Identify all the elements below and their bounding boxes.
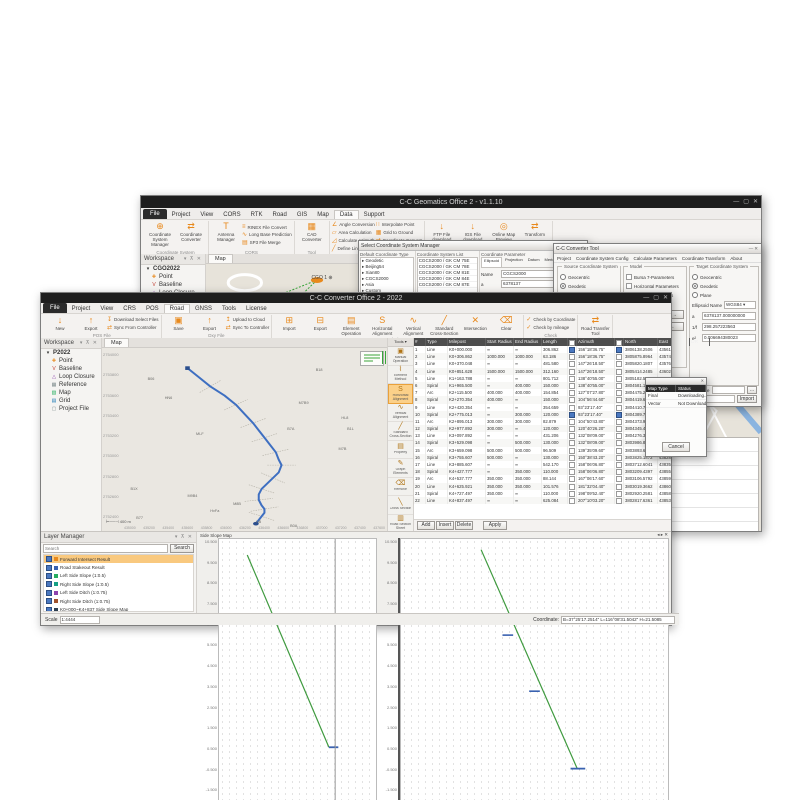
ribbon-button[interactable]: ⇄Road Transfer Tool	[580, 315, 610, 336]
radio-plane[interactable]	[692, 292, 698, 298]
tree-root[interactable]: ▾CGO2022	[141, 265, 205, 273]
table-cell: 13	[414, 432, 426, 439]
layer-item[interactable]: Forward Intersect Result	[44, 555, 193, 563]
menu-tab-view[interactable]: View	[95, 305, 118, 313]
table-cell: 3803712.6041	[624, 461, 658, 468]
ellipsoid-combo[interactable]: WGS84 ▾	[724, 301, 756, 309]
table-cell	[615, 497, 624, 504]
param-tab-datum[interactable]: Datum	[526, 257, 542, 267]
table-cell: 147°26'18.50"	[577, 368, 615, 375]
table-row[interactable]: 5LineK1+163.788∞∞801.712138°40'55.00"380…	[414, 375, 671, 382]
tool-cross-section[interactable]: ╲Cross Section	[388, 496, 413, 515]
col-header-north[interactable]: North	[624, 338, 658, 346]
graph-elements-icon: ✎	[398, 460, 404, 468]
layer-item[interactable]: K0+000~K4+837 Side Slope Map	[44, 605, 193, 612]
row-checkbox[interactable]	[616, 469, 622, 475]
tool-graph-elements[interactable]: ✎Graph Elements	[388, 459, 413, 478]
tree-item-point[interactable]: ✚Point	[141, 273, 205, 281]
row-checkbox[interactable]	[616, 448, 622, 454]
point-icon: ✚	[151, 274, 157, 280]
ribbon-small-label: Interpolate Point	[382, 222, 415, 227]
ribbon-small-button[interactable]: ▱Area Calculation	[332, 229, 375, 236]
col-header-milepost[interactable]: Milepost	[448, 338, 486, 346]
row-checkbox[interactable]	[569, 412, 575, 418]
table-row[interactable]: 6SpiralK1+965.500∞400.000150.000138°40'5…	[414, 382, 671, 389]
front-titlebar[interactable]: C-C Converter Office 2 - 2022 —▢✕	[41, 293, 671, 303]
ribbon-group-cors: TAntenna Manager≡RINEX File Convert∿Long…	[209, 221, 295, 255]
road-tool-panel: Tools ▾ ▣Manual Operation⌇Element Method…	[387, 338, 414, 531]
row-checkbox[interactable]	[616, 405, 622, 411]
table-row[interactable]: 1LineK0+000.000∞∞306.862156°18'36.75"380…	[414, 346, 671, 353]
ribbon-small-label: Check by Coordinate	[533, 317, 575, 322]
table-cell: Spiral	[426, 382, 448, 389]
ribbon-button[interactable]: TAntenna Manager	[211, 221, 241, 249]
table-row[interactable]: 3LineK0+370.048∞∞481.580147°26'18.50"380…	[414, 360, 671, 367]
table-row[interactable]: 9LineK2+420.354∞∞354.65993°23'17.40"3804…	[414, 404, 671, 411]
window-control[interactable]: ▢	[653, 293, 659, 303]
layer-visible-checkbox[interactable]	[46, 598, 52, 604]
window-control[interactable]: —	[643, 293, 649, 303]
row-checkbox[interactable]	[616, 412, 622, 418]
browse-button[interactable]: …	[747, 386, 757, 394]
row-checkbox[interactable]	[569, 383, 575, 389]
converter-menu-about[interactable]: About	[730, 256, 742, 261]
checkbox-bursa-7-parameters[interactable]	[626, 274, 632, 280]
row-checkbox[interactable]	[616, 484, 622, 490]
table-row[interactable]: 20LineK4+625.921350.000350.000101.576181…	[414, 483, 671, 490]
row-checkbox[interactable]	[616, 376, 622, 382]
window-control[interactable]: ✕	[663, 293, 668, 303]
col-header-checkbox[interactable]	[615, 338, 624, 346]
table-cell: 101.576	[542, 483, 568, 490]
table-cell: Spiral	[426, 425, 448, 432]
reference-icon: ▦	[51, 382, 57, 388]
row-checkbox[interactable]	[569, 462, 575, 468]
layer-item[interactable]: Right Side Ditch (1:0.75)	[44, 597, 193, 605]
table-cell: Arc	[426, 475, 448, 482]
radio-row[interactable]: Geocentric	[692, 274, 756, 280]
target-field-value[interactable]: 0.006694380023	[702, 334, 756, 342]
interpolate-point-icon: ∷	[376, 221, 380, 228]
row-checkbox[interactable]	[569, 469, 575, 475]
standard-cross-section-icon: ╱	[442, 315, 447, 326]
table-row[interactable]: 13LineK3+097.892∞∞431.206132°08'09.00"38…	[414, 432, 671, 439]
menu-tab-gis[interactable]: GIS	[292, 211, 312, 219]
insert-button[interactable]: Insert	[436, 521, 454, 530]
ribbon-small-label: Long Base Prediction	[249, 232, 292, 237]
param-tab-ellipsoid[interactable]: Ellipsoid	[481, 257, 502, 267]
row-checkbox[interactable]	[569, 498, 575, 504]
radio-row[interactable]: Geodetic	[560, 283, 618, 289]
converter-menu-calculate-parameters[interactable]: Calculate Parameters	[634, 256, 677, 261]
table-cell	[568, 411, 577, 418]
menu-tab-cors[interactable]: CORS	[218, 211, 245, 219]
col-header-azimuth[interactable]: Azimuth	[577, 338, 615, 346]
dialog-control[interactable]: ✕	[701, 378, 704, 383]
tree-item-loop-closure[interactable]: △Loop Closure	[41, 373, 101, 381]
table-row[interactable]: 21SpiralK4+727.497350.000∞110.000198°09'…	[414, 490, 671, 497]
ribbon-button[interactable]: ⊕Coordinate System Manager	[145, 221, 175, 249]
ribbon-button[interactable]: ⇄Coordinate Converter	[176, 221, 206, 249]
table-cell: 3802817.6361	[624, 497, 658, 504]
row-checkbox[interactable]	[569, 440, 575, 446]
tool-manual-operation[interactable]: ▣Manual Operation	[388, 347, 413, 366]
row-checkbox[interactable]	[569, 491, 575, 497]
table-row[interactable]: 16SpiralK3+755.607500.000∞130.000150°38'…	[414, 454, 671, 461]
table-row[interactable]: 2LineK0+306.8621000.0001000.00063.186156…	[414, 353, 671, 360]
layer-color-swatch	[54, 566, 58, 570]
export-icon: ↑	[207, 315, 212, 326]
chart-left-pane[interactable]: 10.5009.5008.5007.5006.5005.5004.5003.50…	[199, 538, 377, 800]
layer-visible-checkbox[interactable]	[46, 556, 52, 562]
col-header-startradius[interactable]: Start Radius	[486, 338, 514, 346]
layer-item[interactable]: Right Side Slope (1:0.5)	[44, 580, 193, 588]
radio-geocentric[interactable]	[692, 274, 698, 280]
coordinate-converter-icon: ⇄	[187, 221, 195, 232]
back-menubar: FileProjectViewCORSRTKRoadGISMapDataSupp…	[141, 208, 761, 220]
row-checkbox[interactable]	[569, 347, 575, 353]
tree-item-baseline[interactable]: VBaseline	[141, 281, 205, 289]
tree-item-point[interactable]: ✚Point	[41, 357, 101, 365]
layer-visible-checkbox[interactable]	[46, 607, 52, 612]
row-checkbox[interactable]	[616, 476, 622, 482]
ribbon-small-button[interactable]: ∷Interpolate Point	[376, 221, 422, 228]
ribbon-button[interactable]: ↑Export	[195, 315, 225, 332]
table-cell: 4	[414, 368, 426, 375]
panel-pin-close-icons[interactable]: ▾ ⊼ ✕	[184, 256, 202, 262]
menu-tab-license[interactable]: License	[241, 305, 272, 313]
table-cell	[615, 454, 624, 461]
ribbon-button-label: Export	[314, 326, 327, 331]
table-row[interactable]: 18SpiralK4+427.777∞350.000110.000158°06'…	[414, 468, 671, 475]
layer-visible-checkbox[interactable]	[46, 590, 52, 596]
menu-tab-project[interactable]: Project	[167, 211, 196, 219]
table-row[interactable]: 15ArcK3+659.098500.000500.00096.509139°3…	[414, 447, 671, 454]
element-operation-icon: ▤	[347, 315, 356, 326]
define-line-angle-icon: ╱	[332, 245, 336, 252]
ribbon-button[interactable]: ↓New	[45, 315, 75, 332]
table-cell: 500.000	[486, 447, 514, 454]
menu-tab-file[interactable]: File	[143, 209, 167, 219]
row-checkbox[interactable]	[616, 354, 622, 360]
tool-label: Road Section Sheet	[388, 523, 413, 531]
table-cell: 104°56'44.60"	[577, 396, 615, 403]
layer-visible-checkbox[interactable]	[46, 573, 52, 579]
table-cell: ∞	[514, 360, 542, 367]
row-checkbox[interactable]	[616, 455, 622, 461]
radio-row[interactable]: Geodetic	[692, 283, 756, 289]
front-window: C-C Converter Office 2 - 2022 —▢✕ FilePr…	[40, 292, 672, 626]
row-checkbox[interactable]	[569, 484, 575, 490]
ribbon-button[interactable]: ▦CAD Converter	[297, 221, 327, 249]
row-checkbox[interactable]	[616, 498, 622, 504]
converter-dialog-title: C-C Converter Tool	[556, 246, 599, 252]
clear-icon: ⌫	[500, 315, 513, 326]
table-cell: ∞	[514, 454, 542, 461]
row-checkbox[interactable]	[569, 390, 575, 396]
ribbon-button[interactable]: ⌫Clear	[491, 315, 521, 336]
ribbon-small-button[interactable]: ✓Check by mileage	[526, 324, 575, 331]
ribbon-small-button[interactable]: ✓Check by Coordinate	[526, 316, 575, 323]
menu-tab-view[interactable]: View	[195, 211, 218, 219]
radio-row[interactable]: Geocentric	[560, 274, 618, 280]
ribbon-button[interactable]: ⊞Import	[274, 315, 304, 336]
tree-item-label: Point	[59, 358, 73, 364]
tree-item-grid[interactable]: ▤Grid	[41, 397, 101, 405]
table-cell: 93°23'17.40"	[577, 411, 615, 418]
front-map-tab[interactable]: Map	[104, 338, 129, 347]
converter-menu-coordinate-system-config[interactable]: Coordinate System Config	[576, 256, 629, 261]
window-control[interactable]: ▢	[743, 196, 749, 208]
collapse-icon: ▾	[45, 350, 51, 356]
add-button[interactable]: Add	[417, 521, 435, 530]
table-cell: 1500.000	[514, 368, 542, 375]
tool-remove[interactable]: ⌫Remove	[388, 478, 413, 497]
property-icon: ▤	[397, 443, 404, 451]
radio-geocentric[interactable]	[560, 274, 566, 280]
menu-tab-road[interactable]: Road	[268, 211, 292, 219]
ribbon-small-button[interactable]: ≡RINEX File Convert	[242, 224, 292, 230]
table-cell: 300.000	[486, 418, 514, 425]
back-map-tab[interactable]: Map	[208, 254, 233, 263]
menu-tab-pos[interactable]: POS	[141, 305, 164, 313]
table-cell: 431.206	[542, 432, 568, 439]
ribbon-group-tool: ▦CAD ConverterTool	[295, 221, 330, 255]
window-control[interactable]: ✕	[753, 196, 758, 208]
map-scalebar: ⊢──⊣ 400 m	[106, 519, 131, 524]
y-tick-label: 9.500	[387, 560, 397, 565]
tool-vertical-alignment[interactable]: ∿Vertical Alignment	[388, 404, 413, 423]
table-cell	[568, 497, 577, 504]
check-row[interactable]: Horizontal Parameters	[626, 283, 684, 289]
row-checkbox[interactable]	[616, 390, 622, 396]
front-panel-icons[interactable]: ▾ ⊼ ✕	[80, 340, 98, 346]
target-field-value[interactable]: 298.257223563	[702, 323, 756, 331]
checkbox-horizontal-parameters[interactable]	[626, 283, 632, 289]
dialog-control[interactable]: ✕	[754, 246, 759, 251]
menu-tab-file[interactable]: File	[43, 303, 67, 313]
col-header-length[interactable]: Length	[542, 338, 568, 346]
menu-tab-crs[interactable]: CRS	[118, 305, 141, 313]
col-header-east[interactable]: East	[658, 338, 690, 346]
table-cell: ∞	[514, 490, 542, 497]
row-checkbox[interactable]	[569, 433, 575, 439]
ribbon-button[interactable]: ✕Intersection	[460, 315, 490, 336]
map-legend[interactable]	[360, 351, 384, 366]
table-row[interactable]: 12SpiralK2+977.892300.000∞120.000120°40'…	[414, 425, 671, 432]
table-row[interactable]: 22LineK4+837.497∞∞625.084207°10'03.20"38…	[414, 497, 671, 504]
tool-horizontal-alignment[interactable]: SHorizontal Alignment	[388, 384, 413, 404]
table-row[interactable]: 17LineK3+885.607∞∞542.170158°06'06.80"38…	[414, 461, 671, 468]
table-row[interactable]: 10SpiralK2+775.013∞300.000120.00093°23'1…	[414, 411, 671, 418]
tree-item-baseline[interactable]: VBaseline	[41, 365, 101, 373]
table-row[interactable]: 8SpiralK2+270.354400.000∞150.000104°56'4…	[414, 396, 671, 403]
table-row[interactable]: 19ArcK4+537.777350.000350.00088.144167°0…	[414, 475, 671, 482]
table-cell: K3+885.607	[448, 461, 486, 468]
cad-converter-icon: ▦	[308, 221, 317, 232]
table-cell: 63.186	[542, 353, 568, 360]
import-button[interactable]: Import	[737, 395, 757, 403]
row-checkbox[interactable]	[569, 397, 575, 403]
ribbon-small-button[interactable]: ▦Grid to Ground	[376, 229, 422, 236]
apply-button[interactable]: Apply	[483, 521, 507, 530]
row-checkbox[interactable]	[569, 376, 575, 382]
front-workspace-panel: Workspace▾ ⊼ ✕ ▾P2022✚PointVBaseline△Loo…	[41, 338, 102, 531]
ribbon-small-label: Download Select Files	[114, 317, 159, 322]
ribbon-button[interactable]: ⊟Export	[305, 315, 335, 336]
ribbon-small-button[interactable]: ⇄Sync From Controller	[107, 324, 159, 331]
cancel-button[interactable]: Cancel	[662, 442, 690, 452]
row-checkbox[interactable]	[616, 369, 622, 375]
table-cell	[568, 368, 577, 375]
ribbon-small-button[interactable]: ↥Upload to Cloud	[226, 316, 270, 323]
ribbon-small-button[interactable]: ∿Long Base Prediction	[242, 231, 292, 238]
row-checkbox[interactable]	[616, 426, 622, 432]
menu-tab-gnss[interactable]: GNSS	[190, 305, 217, 313]
table-row[interactable]: 7ArcK2+115.500400.000400.000154.854127°0…	[414, 389, 671, 396]
file-name-field[interactable]	[712, 386, 745, 394]
tree-item-project-file[interactable]: ▢Project File	[41, 405, 101, 413]
ribbon-button[interactable]: ╱Standard Cross-Section	[429, 315, 459, 336]
map-y-label: 2753000	[103, 453, 119, 458]
table-cell: K3+755.607	[448, 454, 486, 461]
col-header-endradius[interactable]: End Radius	[514, 338, 542, 346]
table-cell: 1500.000	[486, 368, 514, 375]
converter-menu-project[interactable]: Project	[557, 256, 571, 261]
coord-system-item[interactable]: CGCS2000 / GK CM 87E	[418, 282, 477, 288]
tool-element-method[interactable]: ⌇Element Method	[388, 366, 413, 385]
menu-tab-tools[interactable]: Tools	[217, 305, 241, 313]
ribbon-button-label: Save	[173, 326, 183, 331]
row-checkbox[interactable]	[616, 347, 622, 353]
delete-button[interactable]: Delete	[455, 521, 473, 530]
ribbon-small-button[interactable]: ↧Download Select Files	[107, 316, 159, 323]
tree-root[interactable]: ▾P2022	[41, 349, 101, 357]
layer-visible-checkbox[interactable]	[46, 581, 52, 587]
col-header-lr[interactable]: L/R	[690, 338, 710, 346]
table-row[interactable]: 11ArcK2+895.013300.000300.00082.879104°5…	[414, 418, 671, 425]
row-checkbox[interactable]	[616, 383, 622, 389]
ribbon-button[interactable]: ▤Element Operation	[336, 315, 366, 336]
target-field-value[interactable]: 6378137.000000000	[702, 312, 756, 320]
param-tab-projection[interactable]: Projection	[503, 257, 525, 267]
row-checkbox[interactable]	[616, 433, 622, 439]
table-row[interactable]: 4LineK0+851.6281500.0001500.000312.16014…	[414, 368, 671, 375]
layer-item[interactable]: Left Side Slope (1:0.5)	[44, 572, 193, 580]
layer-color-swatch	[54, 574, 58, 578]
radio-geodetic[interactable]	[692, 283, 698, 289]
row-checkbox[interactable]	[616, 397, 622, 403]
menu-tab-map[interactable]: Map	[312, 211, 334, 219]
front-map-canvas[interactable]: 2754000275380027536002753400275320027530…	[102, 348, 387, 531]
row-checkbox[interactable]	[616, 491, 622, 497]
table-cell: Spiral	[426, 468, 448, 475]
row-checkbox[interactable]	[616, 361, 622, 367]
row-checkbox[interactable]	[616, 440, 622, 446]
online-map-preview-icon: ◎	[500, 221, 508, 232]
table-cell: 138°40'55.00"	[577, 382, 615, 389]
window-control[interactable]: —	[733, 196, 739, 208]
table-cell	[568, 454, 577, 461]
row-checkbox[interactable]	[569, 369, 575, 375]
menu-tab-data[interactable]: Data	[334, 210, 359, 219]
ribbon-small-label: Sync To Controller	[233, 325, 270, 330]
row-checkbox[interactable]	[569, 426, 575, 432]
menu-tab-rtk[interactable]: RTK	[246, 211, 268, 219]
table-cell: 400.000	[486, 396, 514, 403]
table-cell: 147°26'18.50"	[577, 360, 615, 367]
menu-tab-support[interactable]: Support	[359, 211, 390, 219]
tree-item-map[interactable]: ▧Map	[41, 389, 101, 397]
tool-panel-tab[interactable]: Tools ▾	[388, 338, 413, 347]
ribbon-small-button[interactable]: ▤SP3 File Merge	[242, 239, 292, 246]
menu-tab-project[interactable]: Project	[67, 305, 96, 313]
table-cell: 801.712	[542, 375, 568, 382]
row-checkbox[interactable]	[616, 462, 622, 468]
ribbon-button[interactable]: SHorizontal Alignment	[367, 315, 397, 336]
transform-icon: ⇄	[531, 221, 539, 232]
layer-item[interactable]: Road Stakeout Result	[44, 563, 193, 571]
back-titlebar[interactable]: C-C Geomatics Office 2 - v1.1.10 —▢✕	[141, 196, 761, 208]
tree-item-reference[interactable]: ▦Reference	[41, 381, 101, 389]
row-checkbox[interactable]	[569, 419, 575, 425]
table-header[interactable]: #TypeMilepostStart RadiusEnd RadiusLengt…	[414, 338, 671, 346]
row-checkbox[interactable]	[616, 419, 622, 425]
ribbon-button[interactable]: ▣Save	[164, 315, 194, 332]
ribbon-small-button[interactable]: ∠Angle Conversion	[332, 221, 375, 228]
map-x-axis-labels: 4350004352004354004356004358004360004362…	[124, 526, 385, 530]
layer-visible-checkbox[interactable]	[46, 565, 52, 571]
col-header-checkbox[interactable]	[568, 338, 577, 346]
scale-value-field[interactable]: 1:4444	[60, 616, 100, 624]
download-dialog-controls[interactable]: ✕	[646, 378, 706, 385]
table-cell	[615, 396, 624, 403]
layer-manager-icons[interactable]: ▾ ⊼ ✕	[175, 534, 193, 540]
menu-tab-road[interactable]: Road	[164, 304, 190, 313]
check-row[interactable]: Bursa 7-Parameters	[626, 274, 684, 280]
sync-from-controller-icon: ⇄	[107, 324, 112, 331]
radio-row[interactable]: Plane	[692, 292, 756, 298]
ribbon-button[interactable]: ∿Vertical Alignment	[398, 315, 428, 336]
ribbon-button[interactable]: ↑Export	[76, 315, 106, 332]
col-header-type[interactable]: Type	[426, 338, 448, 346]
tool-property[interactable]: ▤Property	[388, 441, 413, 460]
tool-standard-cross-section[interactable]: ╱Standard Cross-Section	[388, 422, 413, 441]
layer-item[interactable]: Left Side Ditch (1:0.75)	[44, 589, 193, 597]
ribbon-small-button[interactable]: ⇄Sync To Controller	[226, 324, 270, 331]
layer-search-button[interactable]: Search	[170, 544, 194, 553]
table-row[interactable]: 14SpiralK3+529.098∞500.000130.000132°08'…	[414, 439, 671, 446]
chart-right-pane[interactable]: 10.5009.5008.5007.5006.5005.5004.5003.50…	[379, 538, 669, 800]
table-cell: 350.000	[486, 483, 514, 490]
layer-search-input[interactable]	[43, 544, 168, 553]
radio-geodetic[interactable]	[560, 283, 566, 289]
y-tick-label: 5.500	[207, 642, 217, 647]
table-cell	[615, 353, 624, 360]
table-cell: ∞	[486, 497, 514, 504]
row-checkbox[interactable]	[569, 476, 575, 482]
row-checkbox[interactable]	[569, 448, 575, 454]
converter-menu-coordinate-transform[interactable]: Coordinate Transform	[682, 256, 726, 261]
table-cell	[615, 404, 624, 411]
row-checkbox[interactable]	[569, 361, 575, 367]
layer-manager-title: Layer Manager	[44, 534, 84, 540]
row-checkbox[interactable]	[569, 405, 575, 411]
col-header-[interactable]: #	[414, 338, 426, 346]
row-checkbox[interactable]	[569, 354, 575, 360]
table-cell: 1000.000	[486, 353, 514, 360]
row-checkbox[interactable]	[569, 455, 575, 461]
